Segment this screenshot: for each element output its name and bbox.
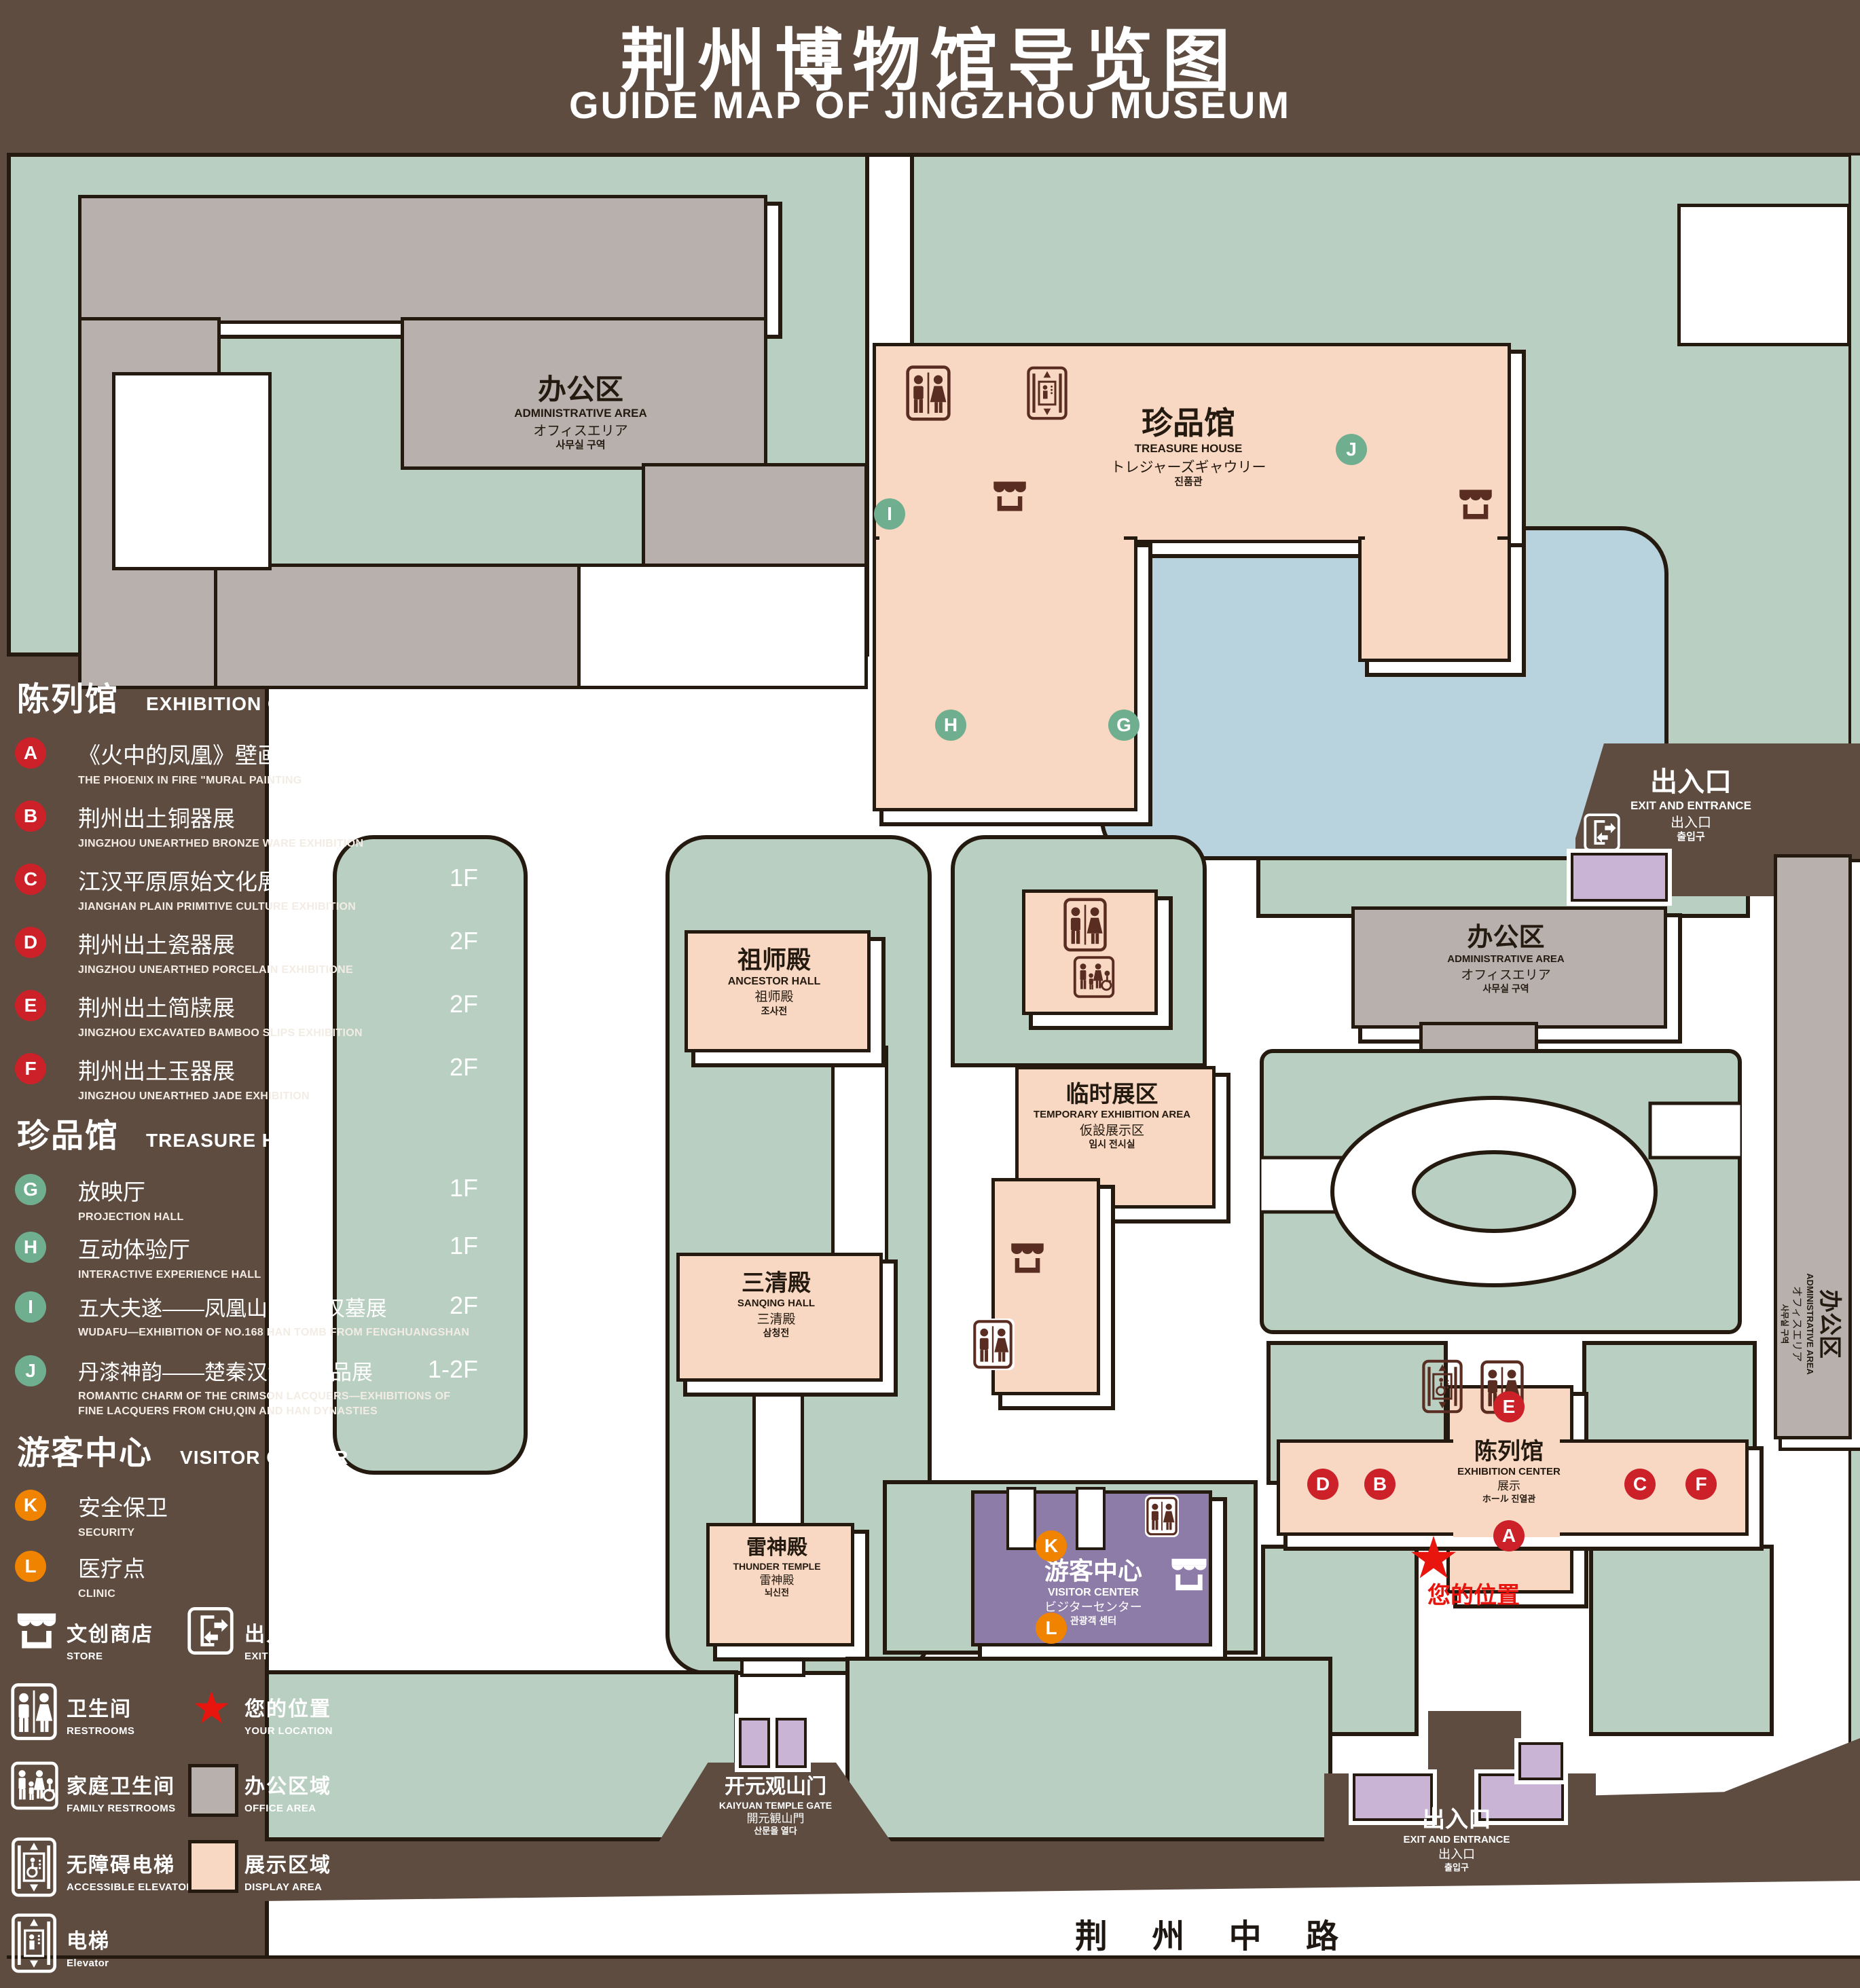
building-treasure-house-east-wing [1358, 536, 1511, 662]
legend-marker-d: D [15, 927, 46, 958]
store-icon [991, 475, 1028, 517]
your-location-star-icon: ★ [192, 1685, 232, 1730]
family-restroom-icon [11, 1761, 58, 1810]
marker-h: H [935, 710, 966, 741]
legend-item-h: H 互动体验厅 INTERACTIVE EXPERIENCE HALL 1F [15, 1232, 482, 1283]
label-exit-south: 出入口 EXIT AND ENTRANCE 出入口 출입구 [1334, 1806, 1579, 1873]
building-lavender-east [1571, 853, 1668, 902]
marker-f: F [1685, 1469, 1717, 1500]
legend-item-a: A 《火中的凤凰》壁画 THE PHOENIX IN FIRE "MURAL P… [15, 737, 482, 788]
restroom-icon [1146, 1496, 1178, 1536]
accessible-elevator-icon [1422, 1358, 1463, 1415]
legend-symbol-elevator: 电梯Elevator [67, 1924, 110, 1969]
accessible-elevator-icon [11, 1837, 57, 1897]
gate-pillar [776, 1718, 807, 1768]
display-area-swatch [188, 1840, 238, 1893]
label-admin-northwest: 办公区 ADMINISTRATIVE AREA オフィスエリア 사무실 구역 [401, 372, 761, 452]
visitor-notch [1076, 1487, 1106, 1550]
legend-symbol-display: 展示区域DISPLAY AREA [244, 1848, 331, 1893]
label-thunder-temple: 雷神殿 THUNDER TEMPLE 雷神殿 뇌신전 [706, 1536, 847, 1598]
restroom-icon [972, 1320, 1013, 1369]
restroom-icon [11, 1682, 57, 1741]
legend-item-e: E 荆州出土简牍展 JINGZHOU EXCAVATED BAMBOO SLIP… [15, 990, 482, 1041]
marker-e: E [1493, 1391, 1525, 1422]
area-gate-east-green [845, 1657, 1332, 1841]
building-admin-northwest-right-wing [642, 463, 868, 570]
legend-marker-c: C [15, 864, 46, 895]
path-corridor [831, 1046, 888, 1263]
legend-marker-b: B [15, 800, 46, 832]
label-admin-middle: 办公区 ADMINISTRATIVE AREA オフィスエリア 사무실 구역 [1351, 922, 1660, 995]
guide-map-page: 荆州博物馆导览图 GUIDE MAP OF JINGZHOU MUSEUM 办公… [0, 0, 1860, 1988]
legend-marker-e: E [15, 990, 46, 1021]
legend-marker-k: K [15, 1490, 46, 1521]
legend-symbol-office: 办公区域OFFICE AREA [244, 1769, 331, 1814]
your-location-label: 您的位置 [1399, 1577, 1548, 1610]
legend-symbol-location: 您的位置YOUR LOCATION [244, 1692, 333, 1737]
legend-symbol-accessible-elevator: 无障碍电梯ACCESSIBLE ELEVATOR [67, 1848, 194, 1893]
exit-icon [187, 1606, 234, 1655]
marker-c: C [1624, 1469, 1656, 1500]
legend-item-l: L 医疗点 CLINIC 1F [15, 1551, 482, 1602]
family-restroom-icon [1073, 956, 1115, 998]
label-temporary-exhibition: 临时展区 TEMPORARY EXHIBITION AREA 仮設展示区 임시 … [1015, 1081, 1209, 1150]
marker-d: D [1307, 1469, 1338, 1500]
building-admin-northwest [78, 195, 767, 324]
elevator-icon [1027, 365, 1068, 421]
store-icon [1457, 483, 1494, 526]
legend-item-c: C 江汉平原原始文化展 JIANGHAN PLAIN PRIMITIVE CUL… [15, 864, 482, 915]
restroom-icon [906, 365, 951, 421]
legend-symbol-store: 文创商店STORE [67, 1617, 153, 1662]
legend-marker-h: H [15, 1232, 46, 1263]
building-treasure-house-west-wing [873, 536, 1137, 811]
store-icon [1009, 1237, 1046, 1279]
marker-a: A [1493, 1520, 1525, 1551]
label-exhibition-center: 陈列馆 EXHIBITION CENTER 展示 ホール 진열관 [1393, 1438, 1624, 1504]
marker-l: L [1036, 1613, 1067, 1644]
legend-item-k: K 安全保卫 SECURITY 1F [15, 1490, 482, 1541]
legend-item-b: B 荆州出土铜器展 JINGZHOU UNEARTHED BRONZE WARE… [15, 800, 482, 851]
legend-symbol-family: 家庭卫生间FAMILY RESTROOMS [67, 1769, 176, 1814]
label-admin-east-strip: 办公区 ADMINISTRATIVE AREA オフィスエリア 사무실 구역 [1775, 1154, 1843, 1494]
legend-marker-j: J [15, 1355, 46, 1386]
legend-marker-g: G [15, 1174, 46, 1205]
legend-item-i: I 五大夫遂——凤凰山168号汉墓展 WUDAFU—EXHIBITION OF … [15, 1291, 482, 1340]
label-kaiyuan-gate: 开元观山门 KAIYUAN TEMPLE GATE 開元観山門 산문을 열다 [653, 1775, 898, 1837]
legend-marker-l: L [15, 1551, 46, 1582]
store-icon [15, 1610, 58, 1651]
marker-k: K [1036, 1530, 1067, 1562]
treasure-junction-mask-west [879, 530, 1124, 545]
page-subtitle: GUIDE MAP OF JINGZHOU MUSEUM [0, 83, 1860, 127]
legend-section-exhibition-center: 陈列馆EXHIBITION CENTER [17, 672, 350, 720]
exit-icon [1584, 813, 1620, 851]
label-ancestor-hall: 祖师殿 ANCESTOR HALL 祖师殿 조사전 [685, 945, 864, 1017]
marker-b: B [1364, 1469, 1396, 1500]
legend-item-f: F 荆州出土玉器展 JINGZHOU UNEARTHED JADE EXHIBI… [15, 1053, 482, 1104]
treasure-junction-mask-east [1365, 530, 1497, 545]
legend-symbol-exit: 出入口EXIT AND ENTRANCE [244, 1617, 356, 1662]
area-exhibition-southeast [1589, 1545, 1774, 1736]
legend-symbol-restrooms: 卫生间RESTROOMS [67, 1692, 134, 1737]
elevator-icon [11, 1913, 57, 1973]
legend-item-j: J 丹漆神韵——楚秦汉漆器精品展 ROMANTIC CHARM OF THE C… [15, 1355, 482, 1418]
legend-marker-a: A [15, 737, 46, 769]
restroom-icon [1063, 898, 1107, 952]
marker-j: J [1336, 434, 1367, 465]
marker-i: I [874, 498, 905, 530]
visitor-notch [1006, 1487, 1036, 1550]
legend-section-visitor-center: 游客中心VISITOR CENTER [17, 1426, 348, 1473]
courtyard-admin-southeast [577, 564, 868, 689]
marker-g: G [1108, 710, 1139, 741]
path-corridor [752, 1375, 804, 1532]
label-sanqing-hall: 三清殿 SANQING HALL 三清殿 삼청전 [676, 1270, 876, 1339]
courtyard-northeast [1677, 204, 1850, 346]
gate-pillar [739, 1718, 770, 1768]
legend-marker-i: I [15, 1291, 46, 1323]
label-visitor-center: 游客中心 VISITOR CENTER ビジターセンター 관광객 센터 [988, 1556, 1199, 1627]
legend-item-d: D 荆州出土瓷器展 JINGZHOU UNEARTHED PORCELAIN E… [15, 927, 482, 978]
road-name: 荆 州 中 路 [944, 1909, 1487, 1957]
legend-item-g: G 放映厅 PROJECTION HALL 1F [15, 1174, 482, 1225]
courtyard-admin-west [112, 372, 272, 570]
legend-section-treasure-house: 珍品馆TREASURE HOUSE [17, 1109, 333, 1156]
office-area-swatch [188, 1764, 238, 1817]
road-south-strip [7, 1955, 1860, 1988]
legend-marker-f: F [15, 1053, 46, 1084]
temp-junction-mask [1020, 1183, 1088, 1198]
building-lavender-south-tab [1518, 1742, 1563, 1780]
garden [1260, 1049, 1742, 1334]
building-admin-northwest-south-wing [214, 564, 584, 689]
